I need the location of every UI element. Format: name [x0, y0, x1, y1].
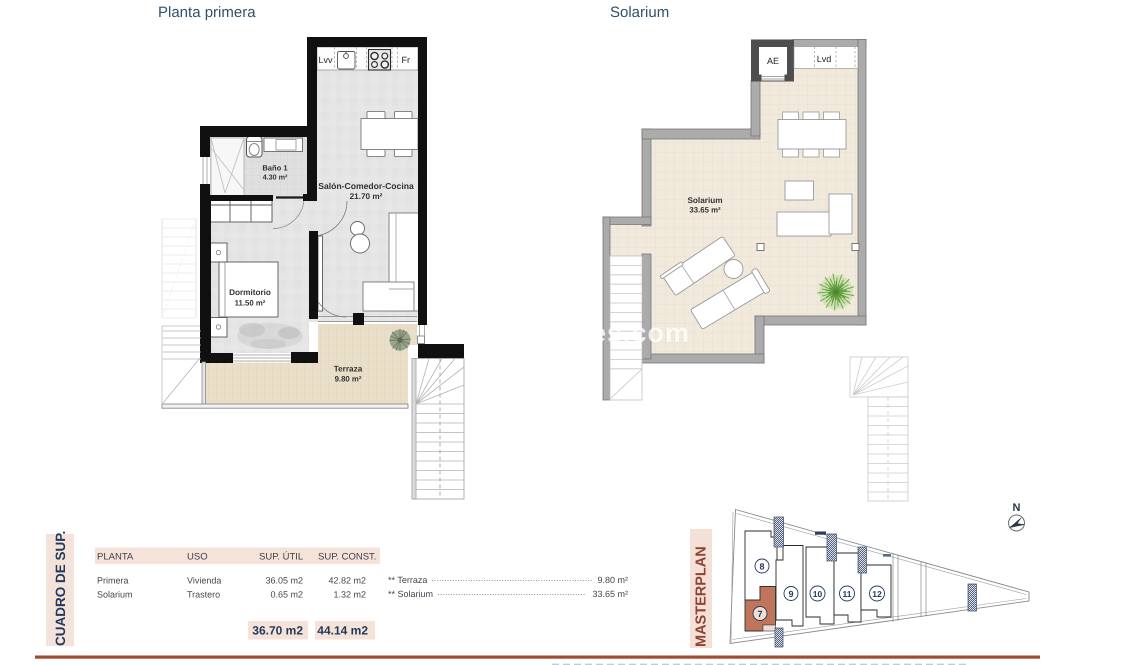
- svg-text:33.65 m²: 33.65 m²: [592, 589, 628, 599]
- svg-text:21.70 m²: 21.70 m²: [350, 192, 383, 201]
- svg-text:Terraza: Terraza: [334, 365, 363, 374]
- svg-text:Salón-Comedor-Cocina: Salón-Comedor-Cocina: [318, 181, 414, 191]
- svg-text:Solarium: Solarium: [687, 196, 722, 205]
- svg-text:MASTERPLAN: MASTERPLAN: [694, 546, 710, 647]
- svg-text:Vivienda: Vivienda: [187, 576, 221, 586]
- svg-text:Solarium: Solarium: [97, 590, 133, 600]
- svg-text:SUP. ÚTIL: SUP. ÚTIL: [259, 551, 303, 563]
- svg-text:houses.com: houses.com: [522, 318, 690, 348]
- svg-text:PLANTA: PLANTA: [97, 552, 134, 563]
- svg-text:9.80 m²: 9.80 m²: [597, 575, 628, 585]
- svg-text:SUP. CONST.: SUP. CONST.: [318, 552, 376, 563]
- svg-text:11: 11: [843, 589, 852, 599]
- svg-text:36.70 m2: 36.70 m2: [252, 624, 303, 638]
- svg-text:33.65 m²: 33.65 m²: [689, 206, 721, 215]
- svg-text:Lvv: Lvv: [319, 55, 334, 65]
- svg-text:CUADRO DE SUP.: CUADRO DE SUP.: [53, 531, 68, 646]
- svg-text:9.80 m²: 9.80 m²: [335, 375, 362, 384]
- svg-text:8: 8: [759, 562, 764, 572]
- svg-text:USO: USO: [187, 552, 208, 563]
- svg-text:Solarium: Solarium: [610, 4, 669, 21]
- svg-text:** Solarium: ** Solarium: [388, 589, 433, 599]
- svg-text:Trastero: Trastero: [187, 590, 220, 600]
- svg-text:AE: AE: [767, 56, 779, 66]
- svg-text:42.82 m2: 42.82 m2: [328, 576, 366, 586]
- svg-text:7: 7: [757, 609, 762, 619]
- svg-text:Baño 1: Baño 1: [262, 164, 288, 173]
- svg-text:10: 10: [813, 589, 823, 599]
- svg-text:Primera: Primera: [97, 576, 129, 586]
- svg-text:11.50 m²: 11.50 m²: [235, 299, 266, 308]
- svg-text:0.65 m2: 0.65 m2: [270, 590, 303, 600]
- svg-text:36.05 m2: 36.05 m2: [265, 576, 303, 586]
- svg-text:N: N: [1013, 502, 1021, 514]
- svg-text:** Terraza: ** Terraza: [388, 575, 427, 585]
- svg-text:Dormitorio: Dormitorio: [229, 288, 271, 297]
- svg-text:1.32 m2: 1.32 m2: [333, 590, 366, 600]
- svg-text:9: 9: [788, 589, 793, 599]
- svg-text:12: 12: [872, 589, 882, 599]
- svg-text:Fr: Fr: [402, 55, 411, 65]
- svg-text:Lvd: Lvd: [817, 54, 832, 64]
- svg-text:Planta primera: Planta primera: [158, 4, 256, 21]
- svg-text:44.14 m2: 44.14 m2: [317, 624, 368, 638]
- svg-text:4.30 m²: 4.30 m²: [263, 173, 288, 182]
